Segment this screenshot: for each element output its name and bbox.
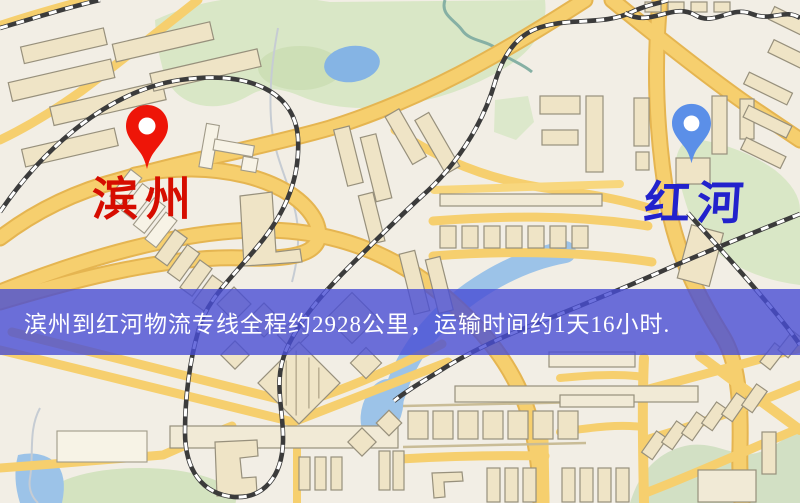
destination-label: 红河 [642, 181, 751, 227]
map-view[interactable]: 滨州 红河 滨州到红河物流专线全程约2928公里，运输时间约1天16小时. [0, 0, 800, 503]
origin-pin-icon[interactable] [123, 103, 171, 173]
map-background [0, 0, 800, 503]
route-info-text: 滨州到红河物流专线全程约2928公里，运输时间约1天16小时. [0, 305, 670, 339]
destination-pin-icon[interactable] [668, 102, 715, 167]
route-info-banner: 滨州到红河物流专线全程约2928公里，运输时间约1天16小时. [0, 289, 800, 355]
origin-label: 滨州 [92, 177, 198, 223]
